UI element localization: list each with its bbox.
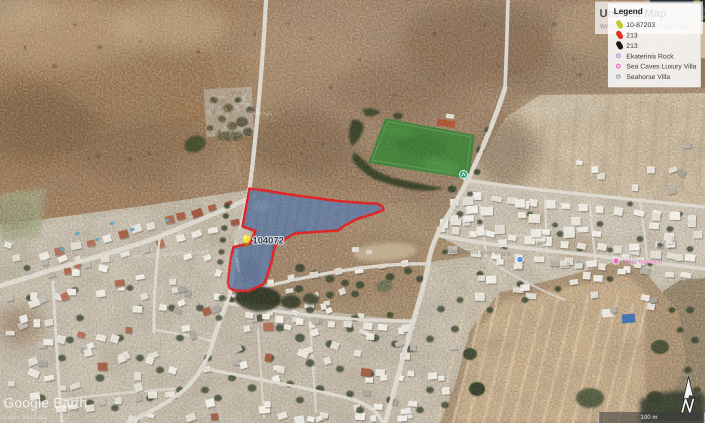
svg-text:Legend: Legend bbox=[614, 7, 643, 16]
svg-text:Sea Caves Luxury Villa: Sea Caves Luxury Villa bbox=[626, 64, 696, 71]
svg-text:213: 213 bbox=[626, 43, 638, 50]
svg-text:Google Earth: Google Earth bbox=[4, 396, 88, 411]
svg-text:Image © 2025 Airbus: Image © 2025 Airbus bbox=[2, 415, 47, 421]
svg-text:10-87203: 10-87203 bbox=[626, 22, 655, 29]
svg-text:Ekaterinis Rock: Ekaterinis Rock bbox=[626, 53, 674, 60]
svg-text:100 m: 100 m bbox=[640, 414, 657, 421]
svg-text:104072: 104072 bbox=[253, 234, 284, 245]
svg-text:213: 213 bbox=[626, 33, 638, 40]
svg-text:Seahorse Villa: Seahorse Villa bbox=[626, 74, 670, 81]
